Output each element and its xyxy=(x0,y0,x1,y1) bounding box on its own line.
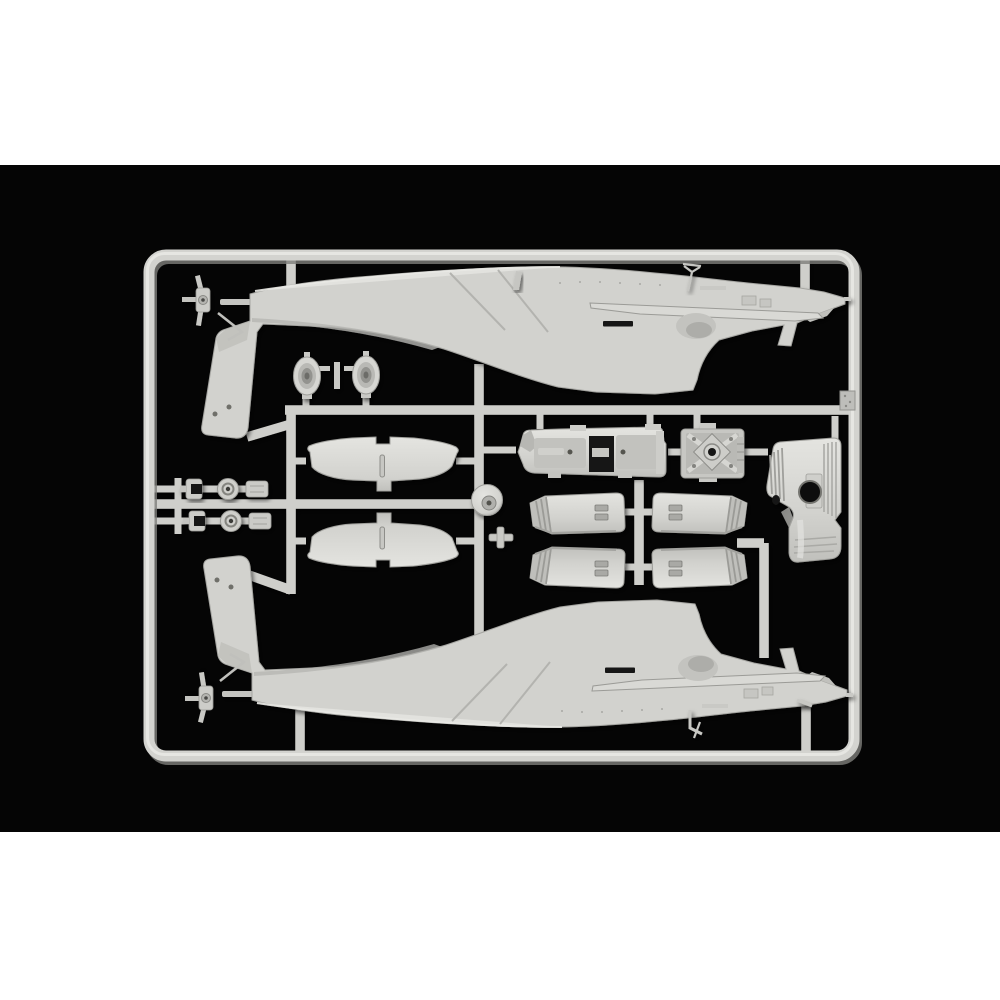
small-parts-row-1 xyxy=(180,479,268,500)
cowl-panel-upper-left xyxy=(530,493,625,534)
cockpit-tub xyxy=(518,424,666,478)
gate-pad xyxy=(840,391,855,410)
cowl-panel-lower-left xyxy=(530,547,625,588)
small-parts-row-2 xyxy=(183,511,271,532)
gearbox xyxy=(681,423,744,482)
cowl-panel-lower-right xyxy=(652,547,747,588)
swashplate-disc xyxy=(472,485,503,516)
sprue-photo xyxy=(0,0,1000,1000)
photo-stage: Rectangular sprue frame with runnersHeli… xyxy=(0,0,1000,1000)
cowl-panel-upper-right xyxy=(652,493,747,534)
